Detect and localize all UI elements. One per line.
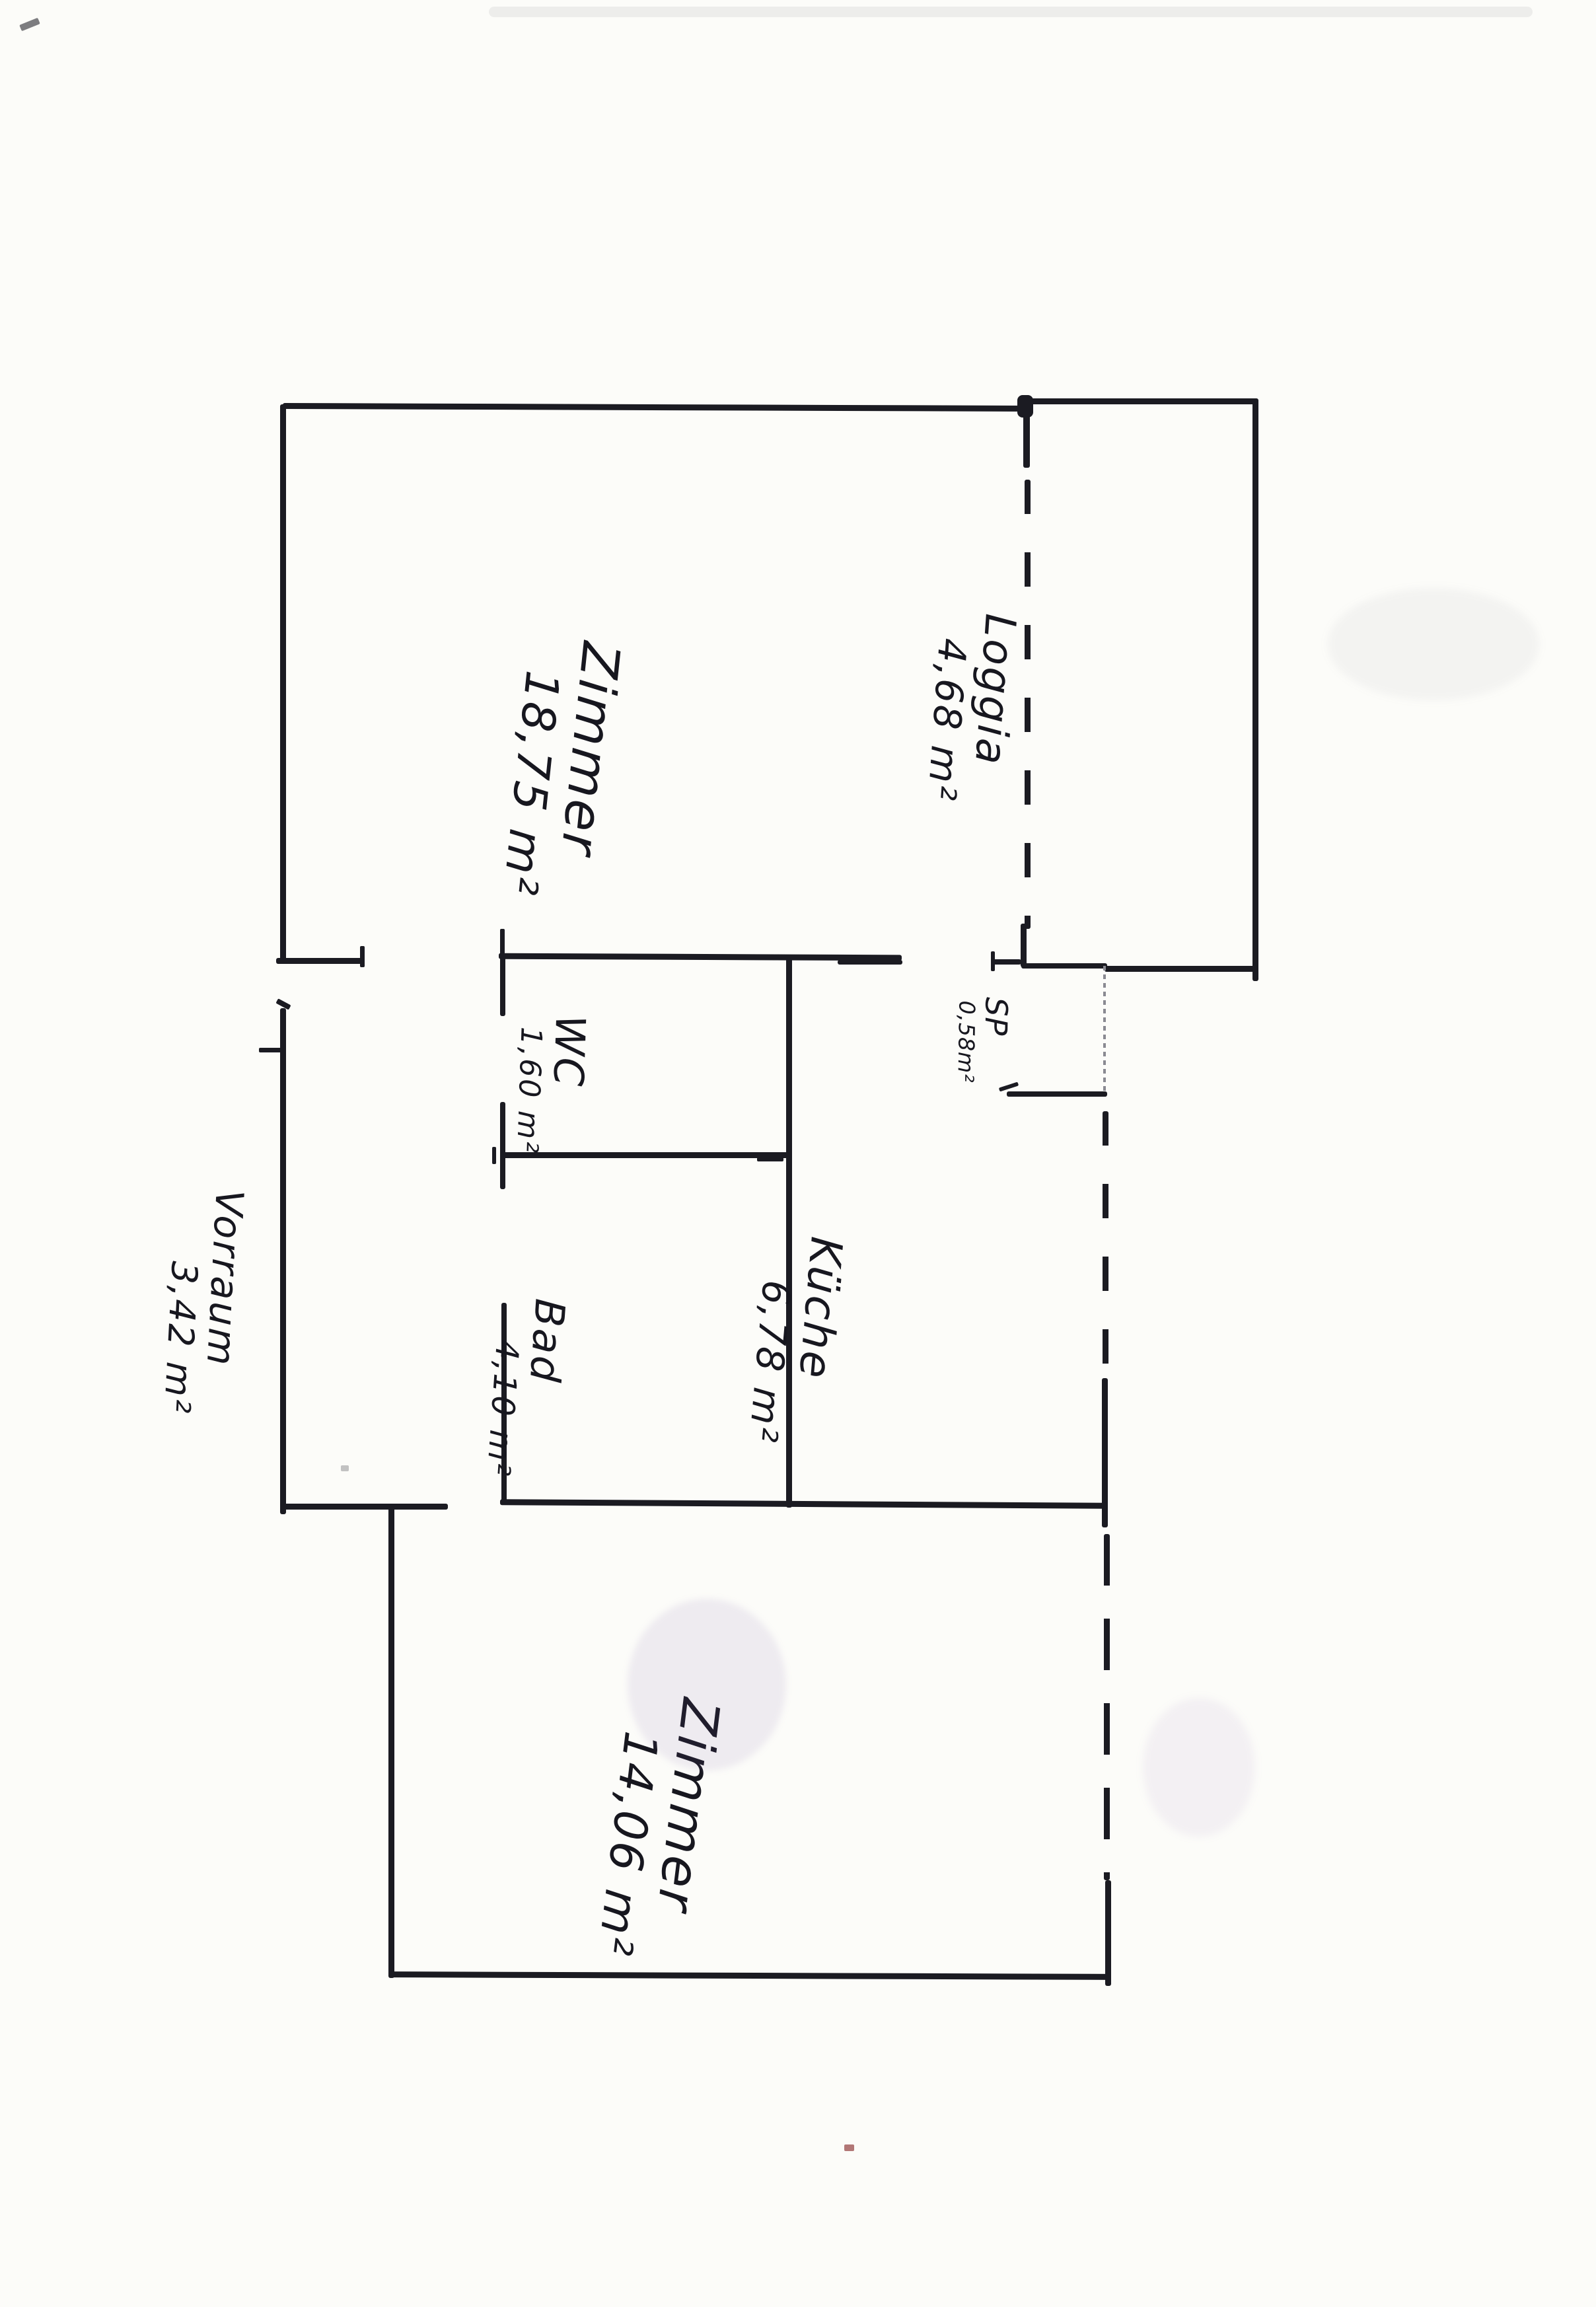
smudge-purple-bottom-zimmer-2 — [1143, 1698, 1255, 1837]
zimmer-top-bottom-wall-left-piece — [276, 958, 365, 964]
middle-bottom-wall — [500, 1499, 1108, 1509]
loggia-divider-top-stub — [1023, 415, 1030, 468]
divider-right-tick — [757, 1157, 783, 1161]
loggia-divider-solid-bottom — [1021, 924, 1027, 967]
door-tick-2 — [991, 951, 995, 971]
loggia-bottom-wall — [1105, 966, 1258, 972]
outer-left-small-tick — [259, 1048, 285, 1052]
room-label-bad: Bad 4,10 m² — [479, 1295, 573, 1482]
wall-outer-right — [1252, 398, 1258, 981]
scan-speck-top-left — [19, 18, 40, 32]
room-label-zimmer-bottom: Zimmer 14,06 m² — [588, 1689, 729, 1967]
vorraum-bottom-wall — [280, 1504, 448, 1510]
room-area: 1,60 m² — [510, 1013, 548, 1155]
divider-left-tick — [492, 1147, 496, 1164]
room-label-wc: WC 1,60 m² — [510, 1013, 593, 1157]
wall-outer-left-lower — [280, 1008, 286, 1514]
smudge-right-of-loggia — [1328, 588, 1539, 700]
scan-speck-vorraum — [341, 1465, 349, 1471]
scan-streak-top-edge — [489, 7, 1533, 17]
bzimmer-right-wall-solid-end — [1105, 1880, 1111, 1986]
room-area: 0,58m² — [953, 996, 979, 1083]
room-label-sp: SP 0,58m² — [953, 996, 1013, 1083]
wall-outer-top-left-segment — [283, 403, 1033, 412]
room-label-vorraum: Vorraum 3,42 m² — [156, 1187, 250, 1418]
kueche-top-tick-piece — [991, 959, 1021, 965]
bzimmer-right-wall-dashed — [1104, 1534, 1110, 1880]
wc-left-wall-lower — [500, 1102, 505, 1189]
scan-speck-red-bottom — [844, 2144, 854, 2151]
room-label-loggia: Loggia 4,68 m² — [920, 609, 1023, 807]
door-tick-1 — [360, 946, 365, 967]
wc-left-wall-upper — [500, 957, 505, 1016]
bzimmer-left-wall — [388, 1506, 394, 1978]
sp-right-wall-faint — [1103, 966, 1106, 1097]
bzimmer-bottom-wall — [388, 1971, 1111, 1980]
sp-bottom-wall — [1007, 1091, 1107, 1097]
floorplan-scan-page: Zimmer 18,75 m² Loggia 4,68 m² WC 1,60 m… — [0, 0, 1596, 2307]
loggia-divider-dashed — [1025, 480, 1031, 929]
wc-top-left-stub — [500, 929, 505, 958]
room-name: WC — [542, 1014, 593, 1157]
kueche-right-wall-dashed — [1103, 1111, 1108, 1381]
sp-top-wall — [1021, 963, 1107, 969]
room-name: SP — [978, 997, 1013, 1084]
kueche-top-double-stroke — [838, 960, 902, 965]
wall-outer-top-right-segment — [1025, 398, 1258, 404]
room-label-kueche: Küche 6,78 m² — [741, 1231, 851, 1449]
room-label-zimmer-top: Zimmer 18,75 m² — [493, 634, 629, 905]
wall-outer-left-upper — [280, 404, 286, 961]
wall-junction-blob — [1017, 395, 1033, 418]
